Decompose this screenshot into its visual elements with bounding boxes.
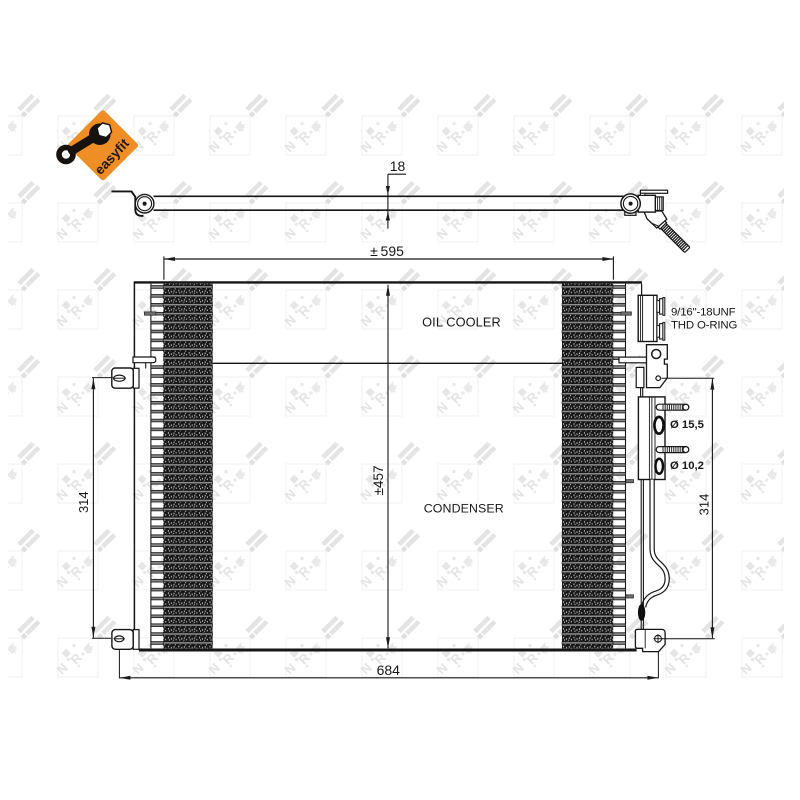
svg-text:18: 18 (390, 158, 406, 174)
svg-text:314: 314 (76, 491, 91, 513)
svg-text:684: 684 (377, 662, 401, 678)
svg-text:± 595: ± 595 (370, 243, 404, 259)
svg-text:9/16"-18UNF: 9/16"-18UNF (671, 307, 736, 319)
svg-text:314: 314 (697, 494, 712, 516)
svg-text:Ø 10,2: Ø 10,2 (670, 460, 704, 472)
svg-text:CONDENSER: CONDENSER (424, 502, 504, 516)
svg-text:±457: ±457 (371, 465, 386, 495)
svg-text:OIL COOLER: OIL COOLER (422, 314, 501, 329)
svg-text:Ø 15,5: Ø 15,5 (670, 419, 704, 431)
svg-text:THD O-RING: THD O-RING (671, 319, 737, 331)
